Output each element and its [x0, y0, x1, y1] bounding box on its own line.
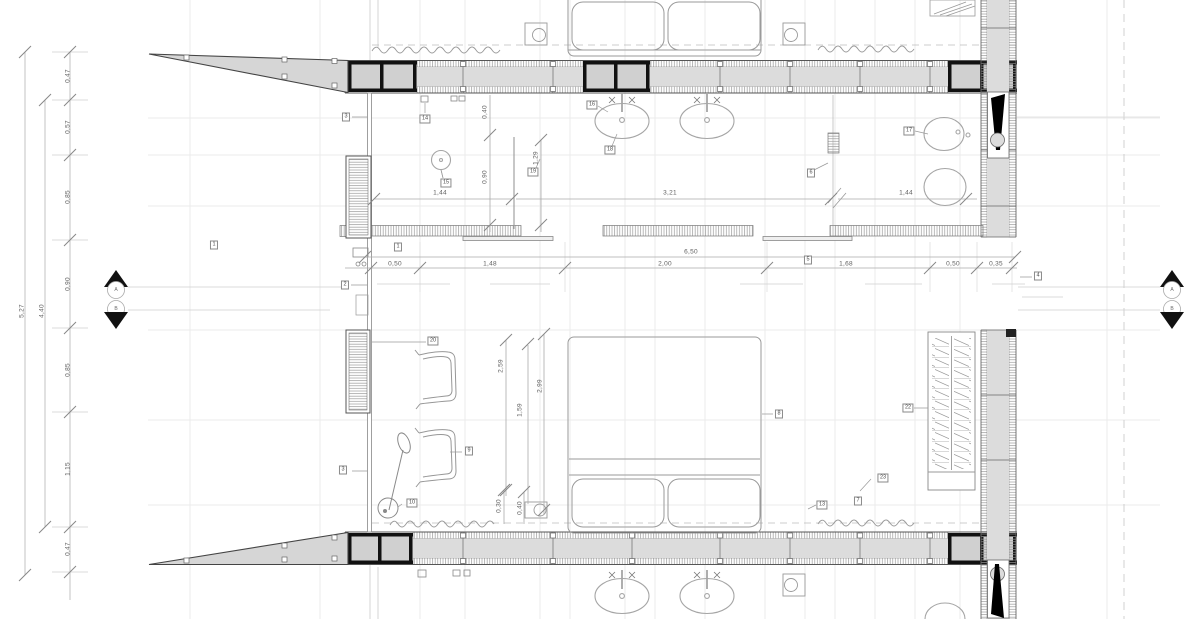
- dimension-label: 1,15: [65, 462, 72, 476]
- keynote: 20: [427, 337, 438, 346]
- top-wall-band: [345, 61, 1017, 94]
- bottom-sinks: [595, 570, 734, 614]
- dimension-label: 0,40: [482, 105, 489, 119]
- section-letter: A: [1170, 287, 1173, 293]
- floorplan-linework: [0, 0, 1200, 619]
- keynote: 3: [339, 466, 347, 475]
- section-marker-left: [104, 270, 128, 329]
- keynote: 17: [903, 127, 914, 136]
- keynote: 2: [341, 281, 349, 290]
- dimension-label: 0,47: [65, 69, 72, 83]
- dimension-label: 2,99: [537, 379, 544, 393]
- dimension-label: 0,40: [517, 501, 524, 515]
- dimension-label: 2,00: [658, 261, 672, 268]
- dimension-label: 0,47: [65, 542, 72, 556]
- keynote: 6: [807, 169, 815, 178]
- keynote: 23: [877, 474, 888, 483]
- dimension-label: 1,29: [533, 151, 540, 165]
- dimension-label: 1,68: [839, 261, 853, 268]
- keynote: 16: [586, 101, 597, 110]
- bath-dimensions: [368, 95, 977, 232]
- dimension-total-label: 6,50: [684, 249, 698, 256]
- dimension-label: 1,44: [899, 190, 913, 197]
- dimension-total-label: 4,40: [39, 304, 46, 318]
- reference-segments: [128, 284, 1160, 310]
- keynote: 9: [465, 447, 473, 456]
- below-band-details: [418, 570, 470, 577]
- keynote: 7: [854, 497, 862, 506]
- right-wall: [981, 0, 1016, 619]
- dimension-label: 0,57: [65, 120, 72, 134]
- keynote: 19: [527, 168, 538, 177]
- dimension-label: 1,48: [483, 261, 497, 268]
- keynote: 3: [342, 113, 350, 122]
- left-dimension-chain: [19, 46, 88, 600]
- dimension-label: 3,21: [663, 190, 677, 197]
- dimension-label: 0,35: [989, 261, 1003, 268]
- keynote: 18: [604, 146, 615, 155]
- section-letter: A: [114, 287, 117, 293]
- dimension-label: 1,44: [433, 190, 447, 197]
- dimension-label: 0,90: [482, 170, 489, 184]
- bottom-wall-band: [345, 532, 1017, 565]
- dimension-label: 0,90: [65, 277, 72, 291]
- dimension-total-label: 5,27: [19, 304, 26, 318]
- left-interior-wall: [346, 93, 372, 532]
- top-closet: [930, 0, 975, 16]
- bottom-left-wedge-wall: [149, 533, 348, 565]
- keynote: 5: [804, 256, 812, 265]
- keynote: 13: [816, 501, 827, 510]
- floor-plan-sheet: 0,47 0,57 0,85 0,90 0,85 1,15 0,47 5,27 …: [0, 0, 1200, 619]
- top-left-wedge-wall: [149, 54, 348, 93]
- keynote: 10: [406, 499, 417, 508]
- wardrobe: [928, 332, 975, 490]
- dimension-label: 1,59: [517, 403, 524, 417]
- bedroom-dimensions: [498, 328, 550, 524]
- bathroom-partition: [340, 226, 983, 241]
- section-letter: B: [114, 306, 117, 312]
- keynote: 8: [775, 410, 783, 419]
- keynote: 22: [902, 404, 913, 413]
- section-marker-right: [1160, 270, 1184, 329]
- keynote: 14: [419, 115, 430, 124]
- side-tables: [525, 23, 805, 596]
- keynote: 4: [1034, 272, 1042, 281]
- keynote: 15: [440, 179, 451, 188]
- keynote: 1: [394, 243, 402, 252]
- keynote: 1: [210, 241, 218, 250]
- dimension-label: 0,85: [65, 363, 72, 377]
- section-letter: B: [1170, 306, 1173, 312]
- center-dimension-line: [345, 251, 1021, 274]
- dimension-label: 0,50: [388, 261, 402, 268]
- dimension-label: 0,85: [65, 190, 72, 204]
- dimension-label: 0,50: [946, 261, 960, 268]
- dimension-label: 2,59: [498, 359, 505, 373]
- dimension-label: 0,30: [496, 499, 503, 513]
